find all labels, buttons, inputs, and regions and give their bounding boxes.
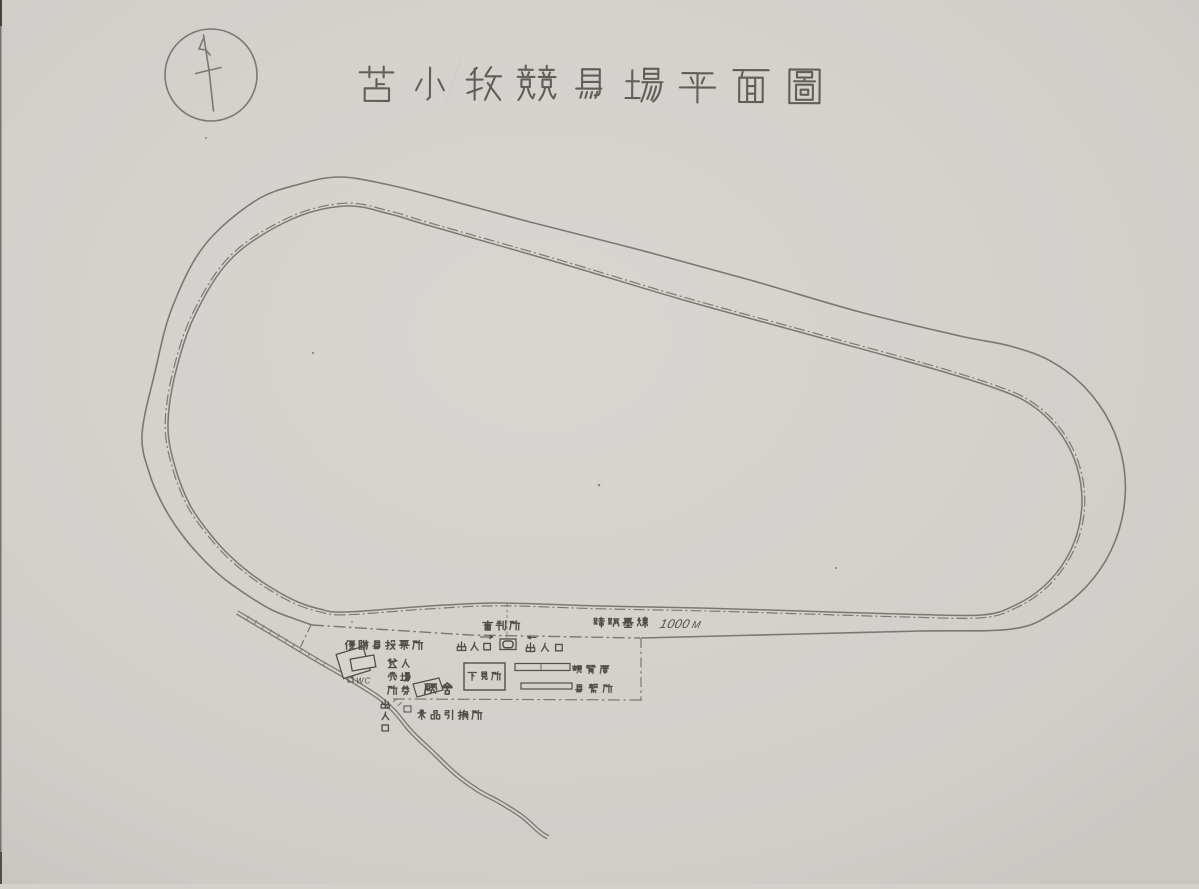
svg-text:WC: WC (356, 677, 371, 686)
svg-text:1000M: 1000M (658, 617, 703, 631)
